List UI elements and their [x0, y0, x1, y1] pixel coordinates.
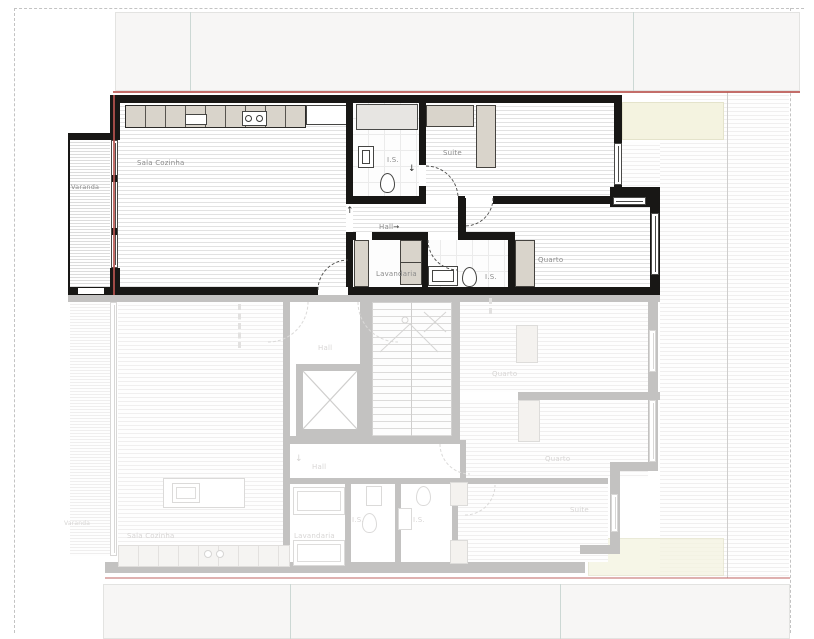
neighbor-divider: [633, 12, 634, 91]
faded-sink: [366, 486, 382, 506]
boundary-line-left: [14, 8, 15, 633]
wall-west-stub: [110, 95, 120, 140]
faded-wall: [345, 484, 351, 568]
varanda-deck: [70, 140, 110, 288]
neighbor-divider: [190, 12, 191, 91]
faded-label-is1: I.S.: [352, 516, 364, 524]
is2-sink: [428, 266, 458, 286]
wall-suite-south: [346, 196, 426, 204]
faded-wall: [452, 302, 460, 440]
wall-notch: [78, 288, 104, 294]
is1-toilet: [380, 173, 395, 193]
room-label-quarto: Quarto: [538, 256, 563, 264]
room-label-varanda: Varanda: [71, 183, 99, 191]
red-boundary-top: [113, 91, 800, 93]
sink-basin: [362, 150, 370, 164]
faded-elevator-wall: [296, 364, 364, 371]
sink-basin: [432, 270, 454, 282]
faded-tick-strip: [489, 298, 492, 314]
wall-south: [68, 287, 660, 295]
faded-window: [611, 494, 618, 532]
faded-wall: [518, 392, 660, 400]
hob-burner: [256, 115, 263, 122]
faded-wall: [460, 440, 466, 478]
sala-floor: [118, 103, 346, 287]
wall-varanda-west: [68, 133, 70, 288]
wall-lav-is2: [422, 240, 428, 287]
faded-label-hall-lobby: Hall: [318, 344, 332, 352]
faded-elevator-wall: [296, 364, 303, 436]
is1-shower: [356, 104, 418, 130]
faded-elevator-wall: [357, 364, 364, 436]
wall-is1-west: [346, 103, 353, 204]
faded-window: [649, 400, 656, 462]
faded-laundry-units: [293, 487, 345, 515]
faded-varanda-floor: [70, 302, 110, 556]
quarto-window-top: [613, 197, 646, 205]
faded-label-hall2: Hall: [312, 463, 326, 471]
room-label-hall: Hall→: [379, 223, 399, 231]
wall-hall-south: [458, 232, 515, 240]
faded-elevator-wall: [296, 429, 364, 436]
sink-basin: [176, 487, 196, 499]
neighbor-building-top: [115, 12, 800, 91]
faded-north-wall: [68, 295, 660, 302]
neighbor-divider: [560, 584, 561, 639]
flow-right-arrow-icon: →: [393, 223, 399, 231]
terrace-bottom-right: [588, 538, 724, 576]
faded-island-sink: [172, 483, 200, 503]
room-label-is2: I.S.: [485, 273, 497, 281]
hob-burner: [245, 115, 252, 122]
faded-stairs-center: [411, 302, 412, 438]
neighbor-building-bottom: [103, 584, 790, 639]
faded-label-lavandaria: Lavandaria: [294, 532, 335, 540]
faded-laundry-units: [293, 540, 345, 566]
laundry-unit: [297, 491, 341, 511]
laundry-appliance: [400, 240, 422, 263]
faded-toilet: [362, 513, 377, 533]
kitchen-sink: [185, 114, 207, 125]
wall-suite-south: [493, 196, 614, 204]
faded-label-quarto1: Quarto: [492, 370, 517, 378]
faded-toilet: [416, 486, 431, 506]
wall-hall-south: [346, 232, 356, 240]
faded-flow-down-arrow-icon: ↓: [295, 455, 303, 464]
faded-hob-burner: [204, 550, 212, 558]
faded-stairs: [372, 302, 452, 438]
faded-wardrobe: [516, 325, 538, 363]
hall-text: Hall: [379, 223, 393, 231]
suite-wardrobe: [476, 105, 496, 168]
suite-wardrobe: [426, 105, 474, 127]
faded-label-suite: Suite: [570, 506, 589, 514]
neighbor-divider: [290, 584, 291, 639]
faded-label-is2: I.S.: [413, 516, 425, 524]
faded-tick-strip: [238, 304, 241, 348]
faded-sala-floor: [118, 302, 283, 566]
faded-window: [649, 330, 656, 372]
red-boundary-west: [113, 95, 115, 295]
wall-varanda-top: [68, 133, 115, 140]
faded-varanda-glazing: [110, 302, 117, 556]
wall-is2-quarto: [508, 240, 515, 287]
red-boundary-bottom: [105, 577, 790, 579]
laundry-cabinet: [354, 240, 369, 287]
faded-hob-burner: [216, 550, 224, 558]
laundry-unit: [297, 544, 341, 562]
faded-wall: [580, 545, 620, 554]
terrace-top-right: [622, 102, 724, 140]
wall-hall-south: [372, 232, 428, 240]
boundary-line-right: [790, 8, 791, 633]
outdoor-deck-step: [622, 142, 660, 187]
boundary-line-top: [14, 8, 804, 9]
room-label-is1: I.S.: [387, 156, 399, 164]
room-label-suite: Suite: [443, 149, 462, 157]
faded-label-quarto2: Quarto: [545, 455, 570, 463]
faded-wall: [283, 436, 460, 444]
quarto-wardrobe: [515, 240, 535, 287]
faded-closet: [450, 540, 468, 564]
room-label-sala-cozinha: Sala Cozinha: [137, 159, 185, 167]
suite-window: [614, 143, 622, 185]
kitchen-counter: [125, 105, 306, 128]
is1-sink: [358, 146, 374, 168]
outdoor-deck-right: [660, 92, 727, 578]
is2-toilet: [462, 267, 477, 287]
wall-top: [113, 95, 622, 103]
outdoor-deck-far-right: [728, 92, 789, 578]
faded-wall: [290, 478, 608, 484]
faded-wardrobe: [518, 400, 540, 442]
room-label-lavandaria: Lavandaria: [376, 270, 417, 278]
faded-label-varanda: Varanda: [64, 520, 90, 528]
flow-up-arrow-icon: ↑: [346, 207, 354, 216]
quarto-window: [651, 213, 659, 275]
faded-wall: [283, 302, 290, 568]
faded-closet: [450, 482, 468, 506]
floor-plan-canvas: Varanda Sala Cozinha I.S. Suite Hall→ La…: [0, 0, 814, 639]
wall-is1-east: [419, 103, 426, 165]
faded-sink: [398, 508, 412, 530]
faded-quarto1-floor: [460, 302, 648, 392]
flow-down-arrow-icon: ↓: [408, 165, 416, 174]
entrance-door-opening: [318, 287, 348, 295]
hall-floor: [353, 204, 458, 232]
faded-label-sala-cozinha: Sala Cozinha: [127, 532, 175, 540]
